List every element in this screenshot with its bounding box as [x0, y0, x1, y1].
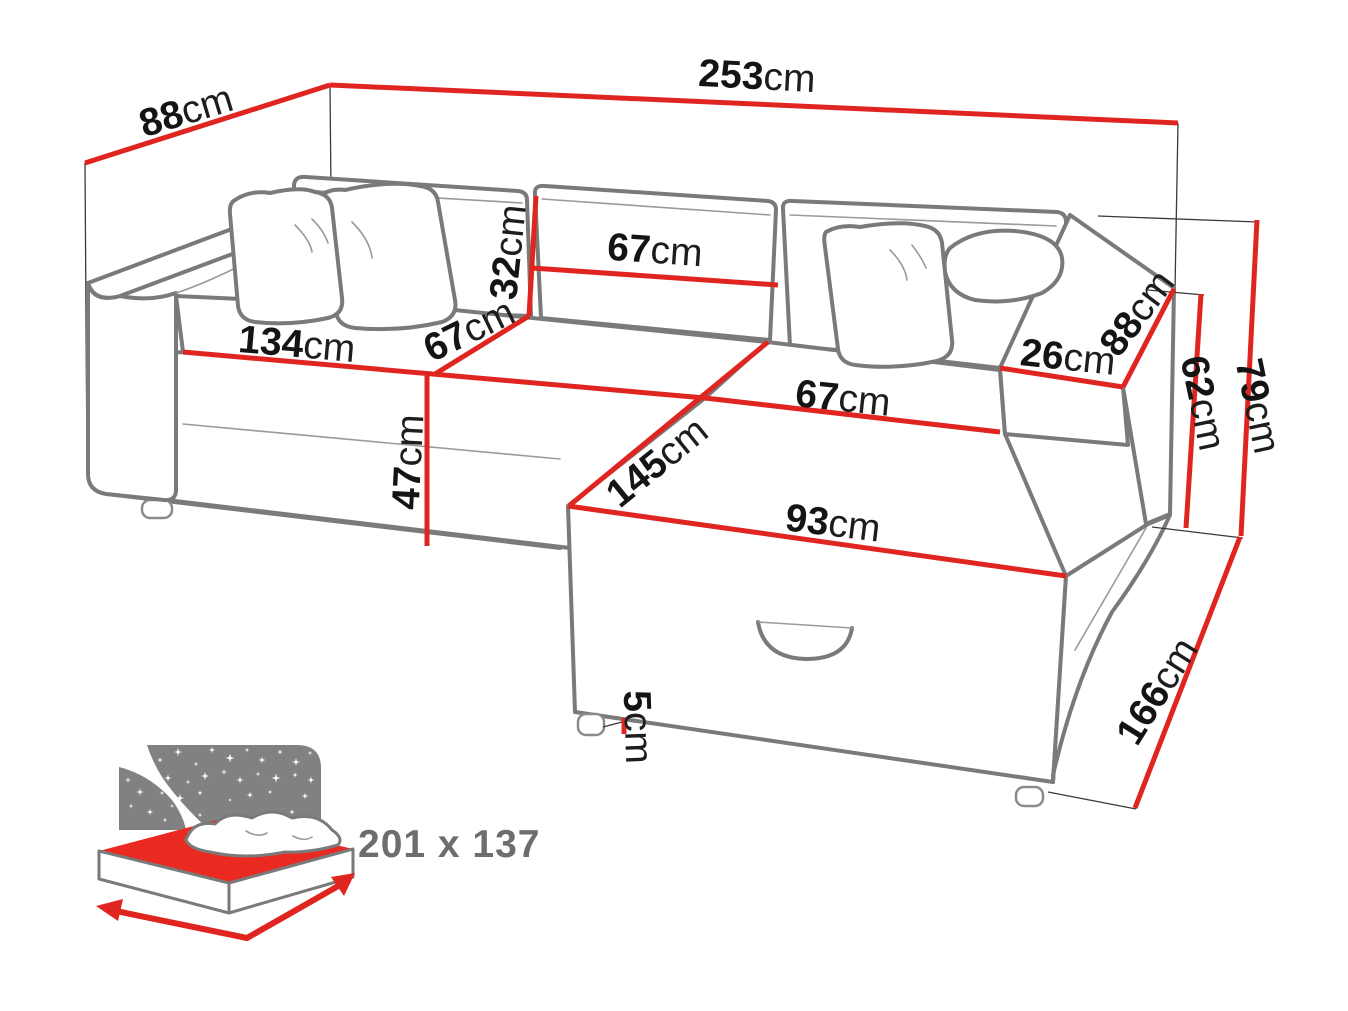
extension-line	[1175, 123, 1178, 289]
base-right	[1053, 515, 1170, 782]
sofa-leg	[142, 500, 172, 518]
extension-line	[1098, 216, 1258, 222]
dim-label-seat-height: 47cm	[384, 413, 432, 511]
pillow-right-roll	[945, 231, 1063, 302]
dim-label-backrest-section-width: 67cm	[606, 225, 704, 275]
dim-label-armrest-height: 62cm	[1172, 352, 1234, 454]
arrowhead-icon	[331, 873, 355, 896]
base-right-face	[1053, 515, 1170, 782]
sleeping-area-icon	[96, 745, 355, 938]
dim-label-total-depth: 88cm	[134, 76, 238, 145]
diagram-svg: 253cm 88cm 32cm 67cm 134cm 67cm 67cm 26c…	[0, 0, 1348, 1011]
arrowhead-icon	[96, 899, 123, 921]
dim-label-total-width: 253cm	[697, 51, 816, 100]
sofa-leg	[1016, 787, 1043, 806]
sofa-leg	[578, 714, 604, 735]
dim-label-chaise-total-length: 166cm	[1108, 630, 1207, 752]
extension-line	[1048, 792, 1136, 809]
sofa-dimension-diagram: 253cm 88cm 32cm 67cm 134cm 67cm 67cm 26c…	[0, 0, 1348, 1011]
width-arrow	[116, 911, 247, 938]
dim-label-leg-height: 5cm	[615, 689, 661, 764]
dim-label-total-height: 79cm	[1227, 355, 1289, 457]
pillow-left-front	[230, 189, 342, 323]
pillow-right-front	[824, 223, 952, 367]
armrest-left-front-face	[88, 283, 176, 500]
sleeping-area-size: 201 x 137	[358, 823, 541, 866]
extension-line	[1152, 527, 1243, 538]
